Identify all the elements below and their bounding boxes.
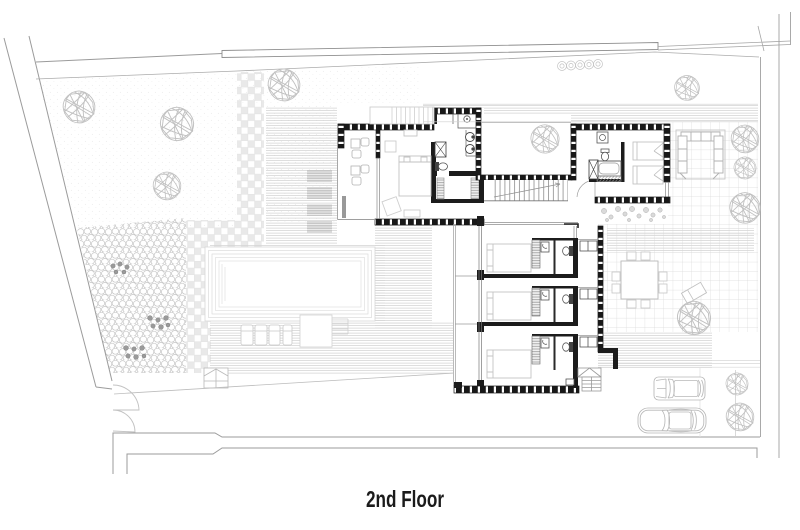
svg-text:2nd Floor: 2nd Floor <box>366 486 444 512</box>
